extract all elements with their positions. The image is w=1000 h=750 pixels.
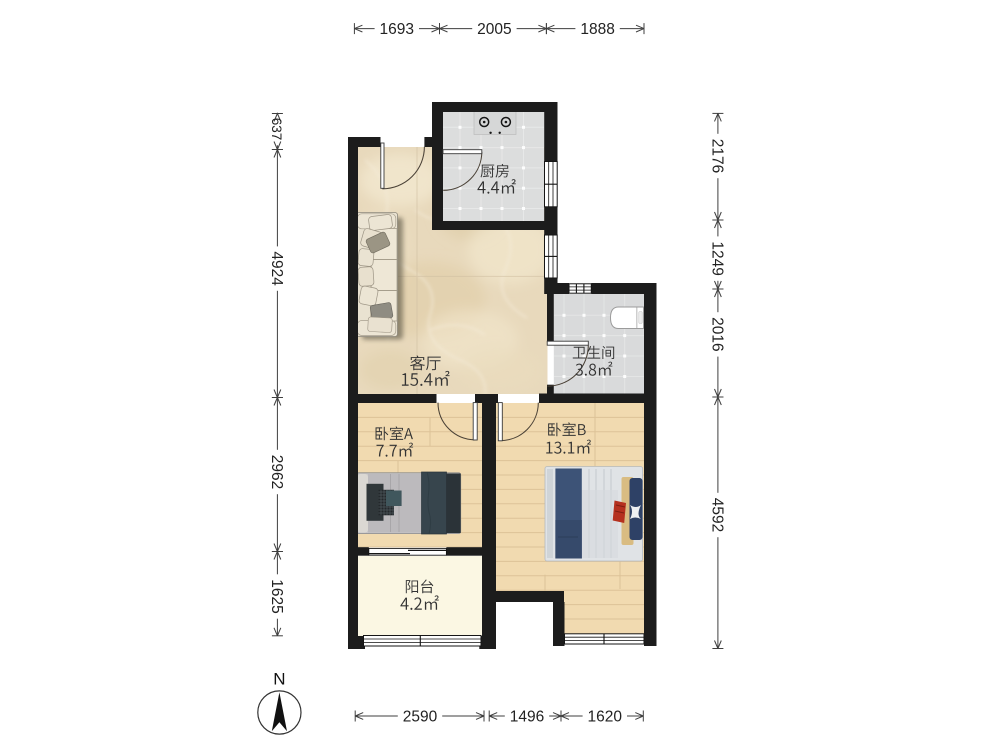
svg-text:2590: 2590 bbox=[403, 708, 438, 725]
svg-text:1496: 1496 bbox=[510, 708, 544, 725]
svg-text:4924: 4924 bbox=[268, 251, 285, 286]
svg-text:1249: 1249 bbox=[709, 241, 726, 275]
svg-text:1625: 1625 bbox=[268, 579, 285, 613]
svg-text:637: 637 bbox=[269, 118, 284, 141]
svg-text:2005: 2005 bbox=[477, 21, 511, 38]
svg-text:2176: 2176 bbox=[709, 139, 726, 173]
svg-text:N: N bbox=[273, 670, 285, 689]
svg-text:2962: 2962 bbox=[268, 455, 285, 489]
svg-text:1693: 1693 bbox=[380, 21, 414, 38]
svg-text:2016: 2016 bbox=[709, 317, 726, 351]
svg-text:1620: 1620 bbox=[588, 708, 623, 725]
svg-text:1888: 1888 bbox=[580, 21, 614, 38]
svg-text:4592: 4592 bbox=[709, 498, 726, 532]
